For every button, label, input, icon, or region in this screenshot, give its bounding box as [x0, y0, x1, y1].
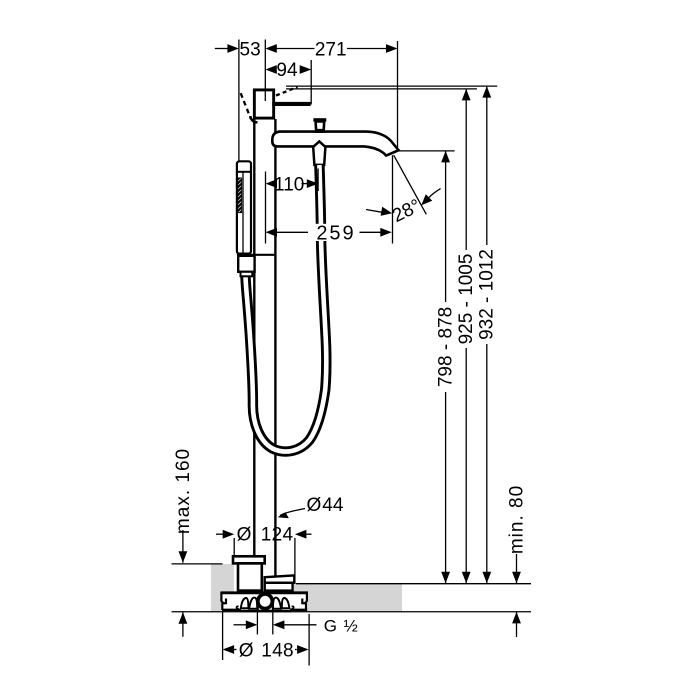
svg-text:798 - 878: 798 - 878 [436, 307, 457, 387]
svg-text:110: 110 [274, 175, 304, 196]
svg-text:259: 259 [316, 223, 355, 245]
svg-text:925 - 1005: 925 - 1005 [456, 254, 477, 345]
svg-text:932 - 1012: 932 - 1012 [477, 249, 498, 340]
svg-text:G ½: G ½ [324, 617, 359, 636]
svg-text:44: 44 [322, 495, 344, 516]
svg-text:max. 160: max. 160 [173, 448, 194, 534]
svg-text:min. 80: min. 80 [506, 485, 527, 554]
svg-text:53: 53 [240, 39, 261, 60]
svg-text:94: 94 [276, 60, 298, 81]
svg-text:271: 271 [315, 39, 347, 60]
svg-text:Ø: Ø [307, 495, 322, 516]
svg-text:Ø: Ø [237, 525, 252, 546]
svg-text:Ø: Ø [239, 641, 254, 662]
svg-text:148: 148 [261, 641, 294, 662]
svg-text:124: 124 [261, 525, 294, 546]
